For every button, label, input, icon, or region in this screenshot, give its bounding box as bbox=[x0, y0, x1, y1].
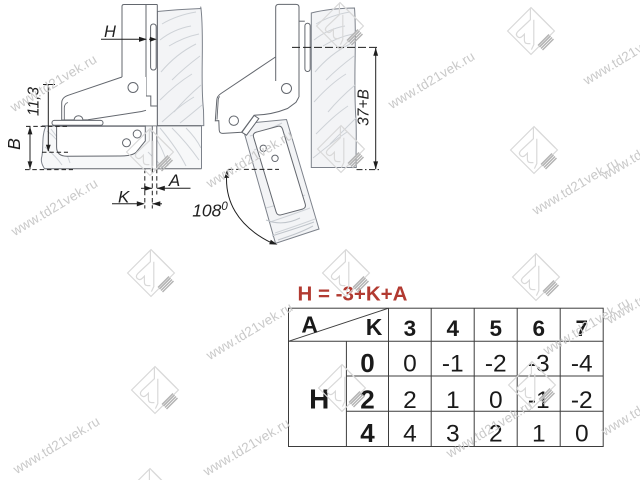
svg-text:H: H bbox=[104, 23, 116, 41]
svg-text:2: 2 bbox=[360, 384, 374, 414]
svg-text:4: 4 bbox=[360, 418, 375, 448]
svg-text:B: B bbox=[4, 138, 24, 150]
svg-text:5: 5 bbox=[490, 316, 503, 341]
svg-text:4: 4 bbox=[403, 421, 417, 448]
svg-text:-4: -4 bbox=[571, 351, 593, 378]
svg-text:37+B: 37+B bbox=[355, 89, 372, 126]
svg-text:0: 0 bbox=[403, 351, 417, 378]
svg-text:H = -3+K+A: H = -3+K+A bbox=[298, 283, 408, 306]
svg-text:1: 1 bbox=[446, 387, 460, 414]
svg-text:0: 0 bbox=[575, 421, 589, 448]
svg-text:2: 2 bbox=[403, 387, 417, 414]
svg-text:-2: -2 bbox=[485, 351, 507, 378]
svg-text:4: 4 bbox=[447, 316, 460, 341]
svg-text:-1: -1 bbox=[442, 351, 464, 378]
svg-text:K: K bbox=[366, 314, 383, 340]
svg-text:0: 0 bbox=[489, 387, 503, 414]
svg-text:3: 3 bbox=[404, 316, 417, 341]
svg-text:0: 0 bbox=[360, 348, 374, 378]
svg-text:-2: -2 bbox=[571, 387, 593, 414]
svg-text:6: 6 bbox=[533, 316, 546, 341]
svg-text:A: A bbox=[168, 171, 180, 190]
svg-text:1: 1 bbox=[532, 421, 546, 448]
svg-text:A: A bbox=[301, 311, 318, 337]
